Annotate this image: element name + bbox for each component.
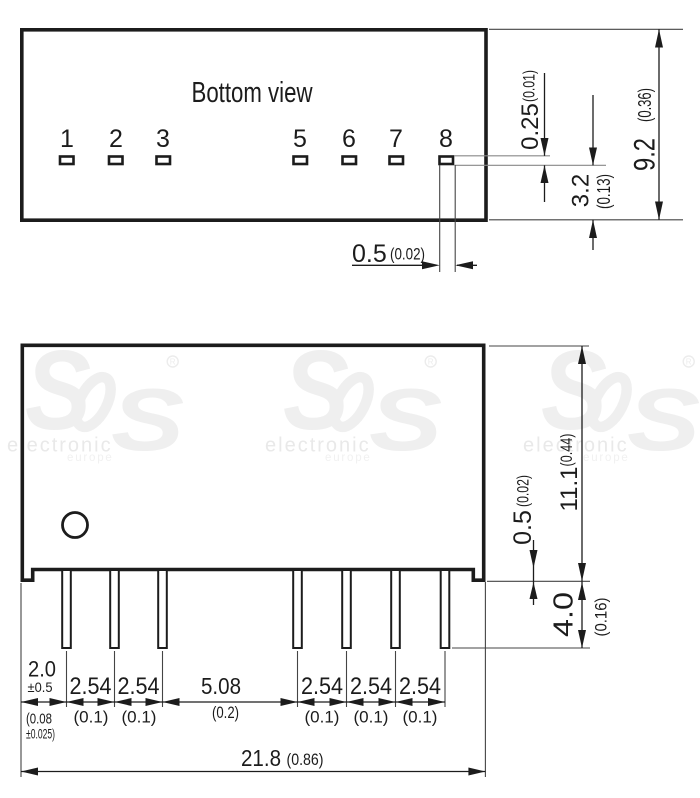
svg-text:2.54: 2.54: [118, 673, 160, 700]
svg-text:(0.01): (0.01): [520, 70, 539, 102]
svg-text:3: 3: [156, 125, 170, 153]
svg-text:5: 5: [293, 125, 307, 153]
svg-text:(0.36): (0.36): [635, 88, 655, 122]
svg-text:2.54: 2.54: [70, 673, 112, 700]
svg-text:Bottom view: Bottom view: [192, 77, 314, 109]
svg-text:(0.16): (0.16): [592, 598, 611, 637]
svg-text:±0.025): ±0.025): [26, 727, 55, 742]
svg-text:11.1: 11.1: [556, 467, 583, 512]
svg-text:0.25: 0.25: [517, 103, 544, 150]
svg-text:(0.1): (0.1): [74, 708, 109, 727]
svg-text:6: 6: [342, 125, 356, 153]
svg-text:4.0: 4.0: [548, 592, 579, 637]
svg-text:0.5: 0.5: [509, 510, 537, 545]
svg-text:(0.44): (0.44): [557, 434, 576, 467]
svg-text:(0.1): (0.1): [403, 708, 438, 727]
svg-text:(0.02): (0.02): [390, 245, 425, 264]
svg-text:2.0: 2.0: [28, 657, 56, 682]
svg-text:3.2: 3.2: [568, 174, 595, 207]
svg-text:2.54: 2.54: [350, 673, 392, 700]
svg-text:(0.1): (0.1): [122, 708, 157, 727]
svg-text:(0.2): (0.2): [212, 704, 239, 722]
svg-text:(0.1): (0.1): [354, 708, 389, 727]
svg-text:7: 7: [389, 125, 403, 153]
svg-text:9.2: 9.2: [628, 138, 661, 171]
svg-text:2.54: 2.54: [399, 673, 441, 700]
svg-text:1: 1: [60, 125, 74, 153]
svg-text:±0.5: ±0.5: [28, 679, 53, 695]
svg-text:(0.08: (0.08: [26, 711, 52, 728]
svg-text:(0.1): (0.1): [305, 708, 340, 727]
svg-text:(0.13): (0.13): [594, 174, 614, 209]
svg-text:(0.86): (0.86): [287, 750, 324, 769]
svg-text:5.08: 5.08: [201, 673, 241, 699]
svg-text:2: 2: [109, 125, 123, 153]
svg-text:8: 8: [439, 125, 453, 153]
svg-text:2.54: 2.54: [301, 673, 343, 700]
svg-text:0.5: 0.5: [352, 240, 387, 268]
svg-text:(0.02): (0.02): [514, 475, 533, 507]
svg-text:21.8: 21.8: [241, 745, 281, 771]
